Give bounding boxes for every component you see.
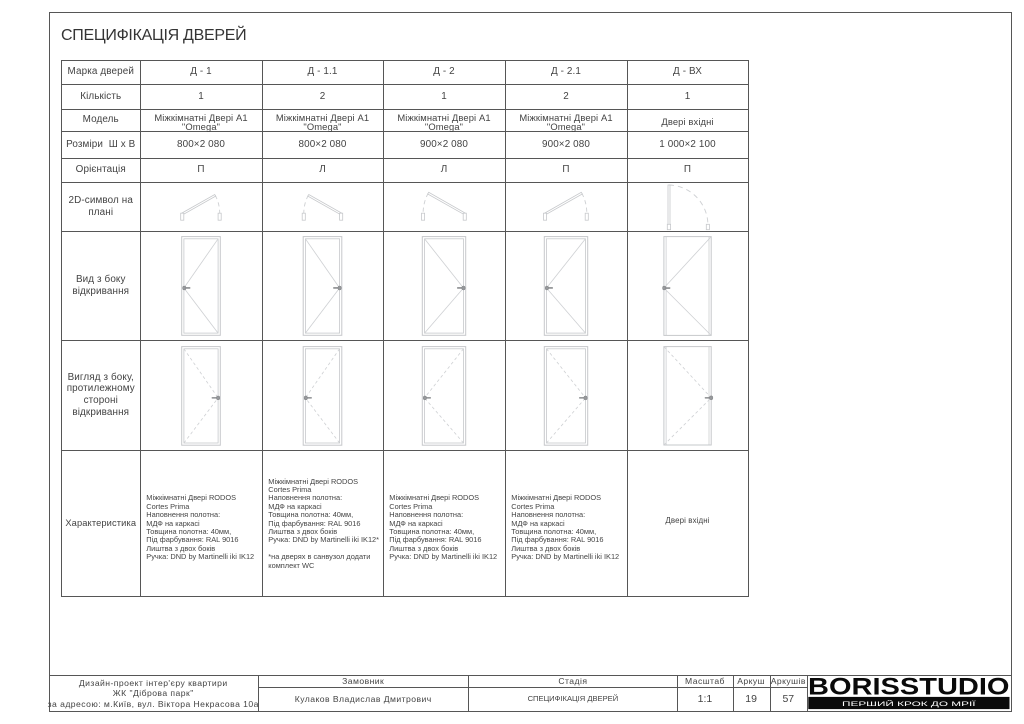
svg-text:BORISSTUDIO: BORISSTUDIO [808, 675, 1010, 701]
svg-text:ПЕРШИЙ КРОК ДО МРІЇ: ПЕРШИЙ КРОК ДО МРІЇ [842, 699, 976, 708]
